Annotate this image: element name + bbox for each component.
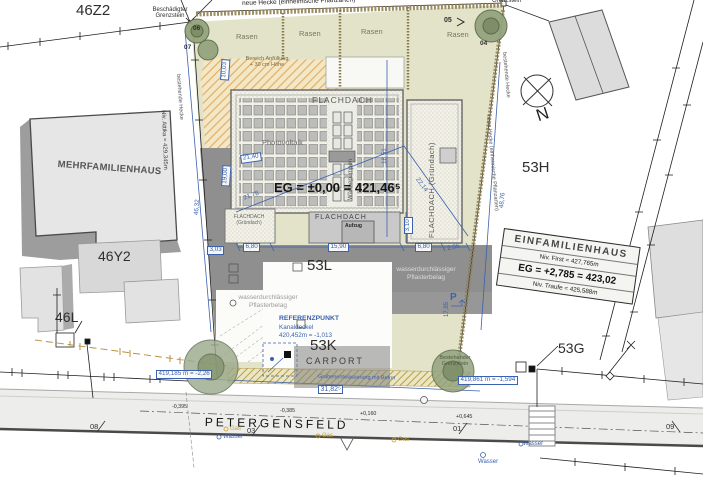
carport-length-dim: 31,82⁵ [318,385,343,394]
gas-label-1: Gas [230,426,241,432]
boundary-stone-top-label: Grenzstein [492,0,521,4]
parcel-53h: 53H [522,160,550,176]
site-plan: 46Z2 Beschädigter Grenzstein Grenzstein … [0,0,703,480]
fill-area-label-2: + 30 cm Höhe [245,63,289,69]
point-07: 07 [184,45,191,52]
street-level-3: +0,160 [360,412,376,418]
flat-roof-main-label: FLACHDACH [312,96,373,105]
elevator-label: Aufzug [345,224,362,229]
carport-label: CARPORT [306,357,364,366]
dim-15-90: 15,90 [328,243,349,252]
dim-6-80-b: 6,80 [415,243,432,252]
paving-left-label-1: wasserdurchlässiger [228,295,308,302]
existing-boundary-stone-label-2: Grenzstein [430,362,480,368]
street-level-2: -0,385 [280,409,295,415]
dim-3-10: 3,10 [404,217,413,234]
parcel-53l: 53L [307,258,332,274]
dim-3-03: 3,03 [207,246,224,255]
parcel-53k: 53K [310,338,337,354]
lawn-label-2: Rasen [299,30,321,38]
manhole-icon [421,397,428,404]
flat-roof-lower-label: FLACHDACH [315,214,367,221]
street-level-1: -0,395 [172,405,187,411]
street-marker-09: 09 [666,423,674,431]
lawn-label-4: Rasen [447,31,469,39]
lawn-label-1: Rasen [236,33,258,41]
parcel-53g: 53G [558,341,584,356]
level-tree-right: 419,861 m = -1,594 [458,376,518,385]
reference-point-line1: Kanaldeckel [279,325,313,332]
dim-18-51: 18,51 [382,148,389,164]
lawn-label-3: Rasen [361,28,383,36]
damaged-boundary-stone-label-2: Grenzstein [146,13,194,19]
reference-point-line2: 420,452m = -1,013 [279,333,332,340]
point-05: 05 [444,17,452,24]
street-marker-03: 03 [247,427,255,435]
parking-symbol: P [450,293,457,304]
green-roof-label: FLACHDACH (Gründach) [428,142,436,238]
street-level-4: +0,645 [456,415,472,421]
gas-label-2: Gas [322,433,333,439]
paving-right-label-1: wasserdurchlässiger [392,267,460,274]
dim-46-32: 46,32 [194,199,202,215]
parcel-46l: 46L [55,310,78,325]
eg-level-label: EG = ±0,00 = 421,46⁵ [274,181,401,195]
street-area [0,389,703,475]
dim-6-80-a: 6,80 [243,243,260,252]
dim-19-00: 19,00 [221,165,231,186]
point-04: 04 [480,41,487,48]
parcel-46z2: 46Z2 [76,3,110,19]
paving-right-label-2: Pflasterbelag [392,275,460,282]
street-name: PETERGENSFELD [205,416,349,432]
water-label-2: Wasser [478,459,498,465]
dim-10-03: 10,03 [220,59,230,80]
paving-left-label-2: Pflasterbelag [228,303,308,310]
parcel-46y2: 46Y2 [98,249,131,264]
street-marker-01: 01 [453,425,461,433]
small-green-roof-label-2: (Gründach) [224,221,274,226]
photovoltaic-label: Photovoltaik [262,139,303,147]
dim-17-85: 17,85 [444,302,450,317]
site-plan-canvas [0,0,703,480]
level-tree-left: 419,185 m = -2,26 [156,370,212,379]
north-arrow-icon [521,75,553,107]
street-marker-08: 08 [90,423,98,431]
water-label-1: Wasser [223,434,243,440]
water-label-3: Wasser [523,441,543,447]
gas-label-3: Gas [398,437,409,443]
reference-point-title: REFERENZPUNKT [279,315,339,322]
crosswalk-icon [529,406,555,446]
point-06: 06 [193,26,200,33]
